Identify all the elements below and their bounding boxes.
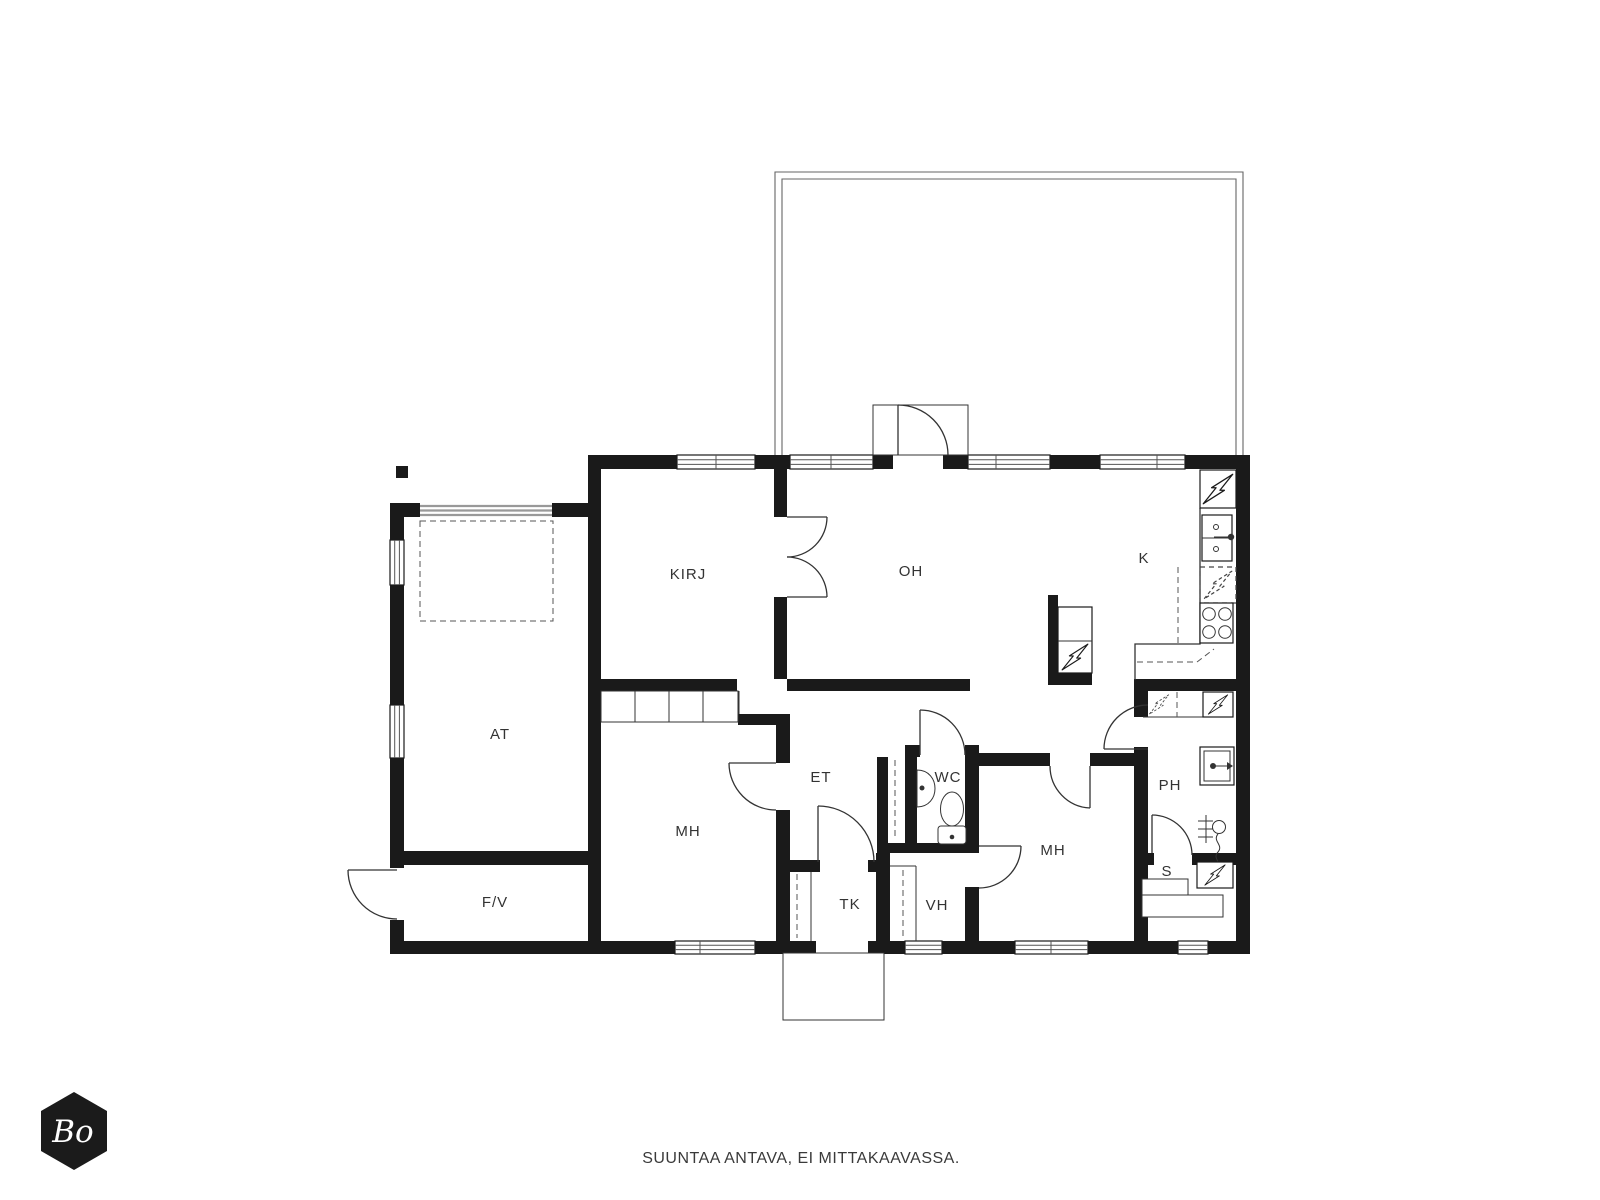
corner-marker (396, 466, 408, 478)
room-label-oh: OH (899, 563, 924, 580)
room-label-vh: VH (926, 897, 949, 914)
wall-hall-a (601, 679, 737, 691)
stove-icon (1200, 603, 1233, 643)
window-top-4 (1100, 455, 1185, 469)
wall-k-bottom (1134, 679, 1236, 691)
wall-wc-right-upper (965, 745, 979, 845)
room-label-mh2: MH (1040, 842, 1065, 859)
wall-s-top-left (1148, 853, 1154, 865)
wall-mh2-top-b (1090, 753, 1136, 766)
sauna-heater-icon (1197, 862, 1233, 888)
terrace-door-gap (893, 455, 943, 469)
door-front (783, 953, 884, 1020)
toilet-icon (938, 792, 966, 844)
floor-plan-canvas: AT KIRJ OH K MH ET WC MH PH S TK VH F/V … (0, 0, 1600, 1200)
front-door-gap (816, 941, 868, 954)
window-bottom-mh2 (1015, 941, 1088, 954)
room-label-ph: PH (1159, 777, 1182, 794)
wall-et-mh1-upper (776, 725, 790, 763)
room-label-fv: F/V (482, 894, 508, 911)
logo-text: Bo (51, 1114, 93, 1150)
window-top-2 (790, 455, 873, 469)
window-garage-left-1 (390, 540, 404, 585)
wall-ph-left-upper (1134, 691, 1148, 717)
room-label-k: K (1138, 550, 1149, 567)
wall-hall-notch (738, 714, 790, 725)
wall-wc-left (905, 745, 917, 853)
window-garage-left-2 (390, 705, 404, 758)
fv-door-gap (390, 868, 404, 920)
window-top-1 (677, 455, 755, 469)
garage-door (420, 503, 552, 517)
wall-tk-vh (876, 853, 890, 941)
washing-machine-icon (1200, 747, 1234, 785)
wall-kirj-oh-lower (774, 597, 787, 679)
wall-at-fv-divider (390, 851, 588, 865)
terrace-door (873, 405, 968, 455)
disclaimer-text: SUUNTAA ANTAVA, EI MITTAKAAVASSA. (642, 1150, 960, 1167)
sauna-bench-upper (1142, 879, 1188, 895)
wall-right (1236, 455, 1250, 954)
fireplace-icon (1058, 607, 1092, 673)
room-label-s: S (1161, 863, 1172, 880)
wall-hall-b (787, 679, 970, 691)
wall-fireplace-base (1048, 673, 1092, 685)
sauna-bench-lower (1142, 895, 1223, 917)
room-label-at: AT (490, 726, 510, 743)
room-label-et: ET (810, 769, 831, 786)
room-label-mh1: MH (675, 823, 700, 840)
wall-tk-top-left (788, 860, 820, 872)
room-label-tk: TK (839, 896, 860, 913)
window-top-3 (968, 455, 1050, 469)
wall-wc-right-lower (965, 887, 979, 941)
wall-et-mh1-lower (776, 810, 790, 941)
entrance-canopy (783, 953, 884, 1020)
wall-house-left (588, 455, 601, 941)
room-label-wc: WC (935, 769, 962, 786)
wall-closet-left-slab (877, 757, 888, 843)
window-bottom-vh (905, 941, 942, 954)
wall-wc-bottom (877, 843, 979, 853)
kitchen-sink-icon (1202, 515, 1234, 561)
window-bottom-s (1178, 941, 1208, 954)
wall-mh2-top-a (978, 753, 1050, 766)
fridge-icon (1200, 470, 1236, 508)
room-label-kirj: KIRJ (670, 566, 707, 583)
wall-fireplace-bar (1048, 595, 1058, 685)
electric-appliance-icon (1203, 692, 1233, 717)
window-bottom-mh1 (675, 941, 755, 954)
wall-kirj-oh-upper (774, 469, 787, 517)
